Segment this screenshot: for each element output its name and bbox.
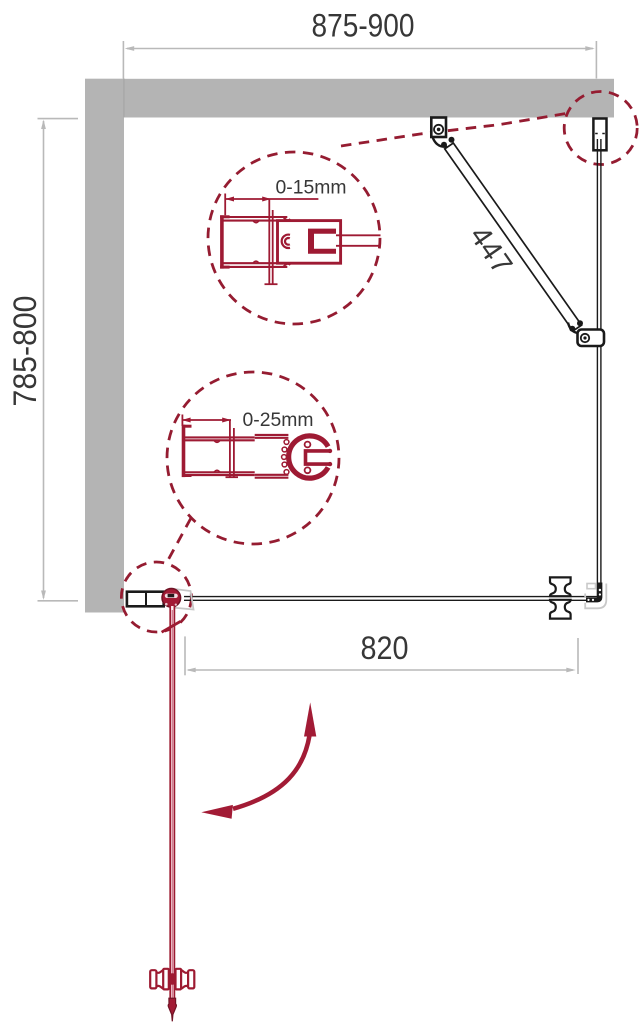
svg-text:785-800: 785-800 — [7, 296, 43, 407]
svg-text:0-15mm: 0-15mm — [276, 177, 347, 199]
svg-text:0-25mm: 0-25mm — [243, 409, 314, 431]
svg-text:875-900: 875-900 — [312, 8, 415, 44]
svg-text:820: 820 — [361, 630, 409, 666]
